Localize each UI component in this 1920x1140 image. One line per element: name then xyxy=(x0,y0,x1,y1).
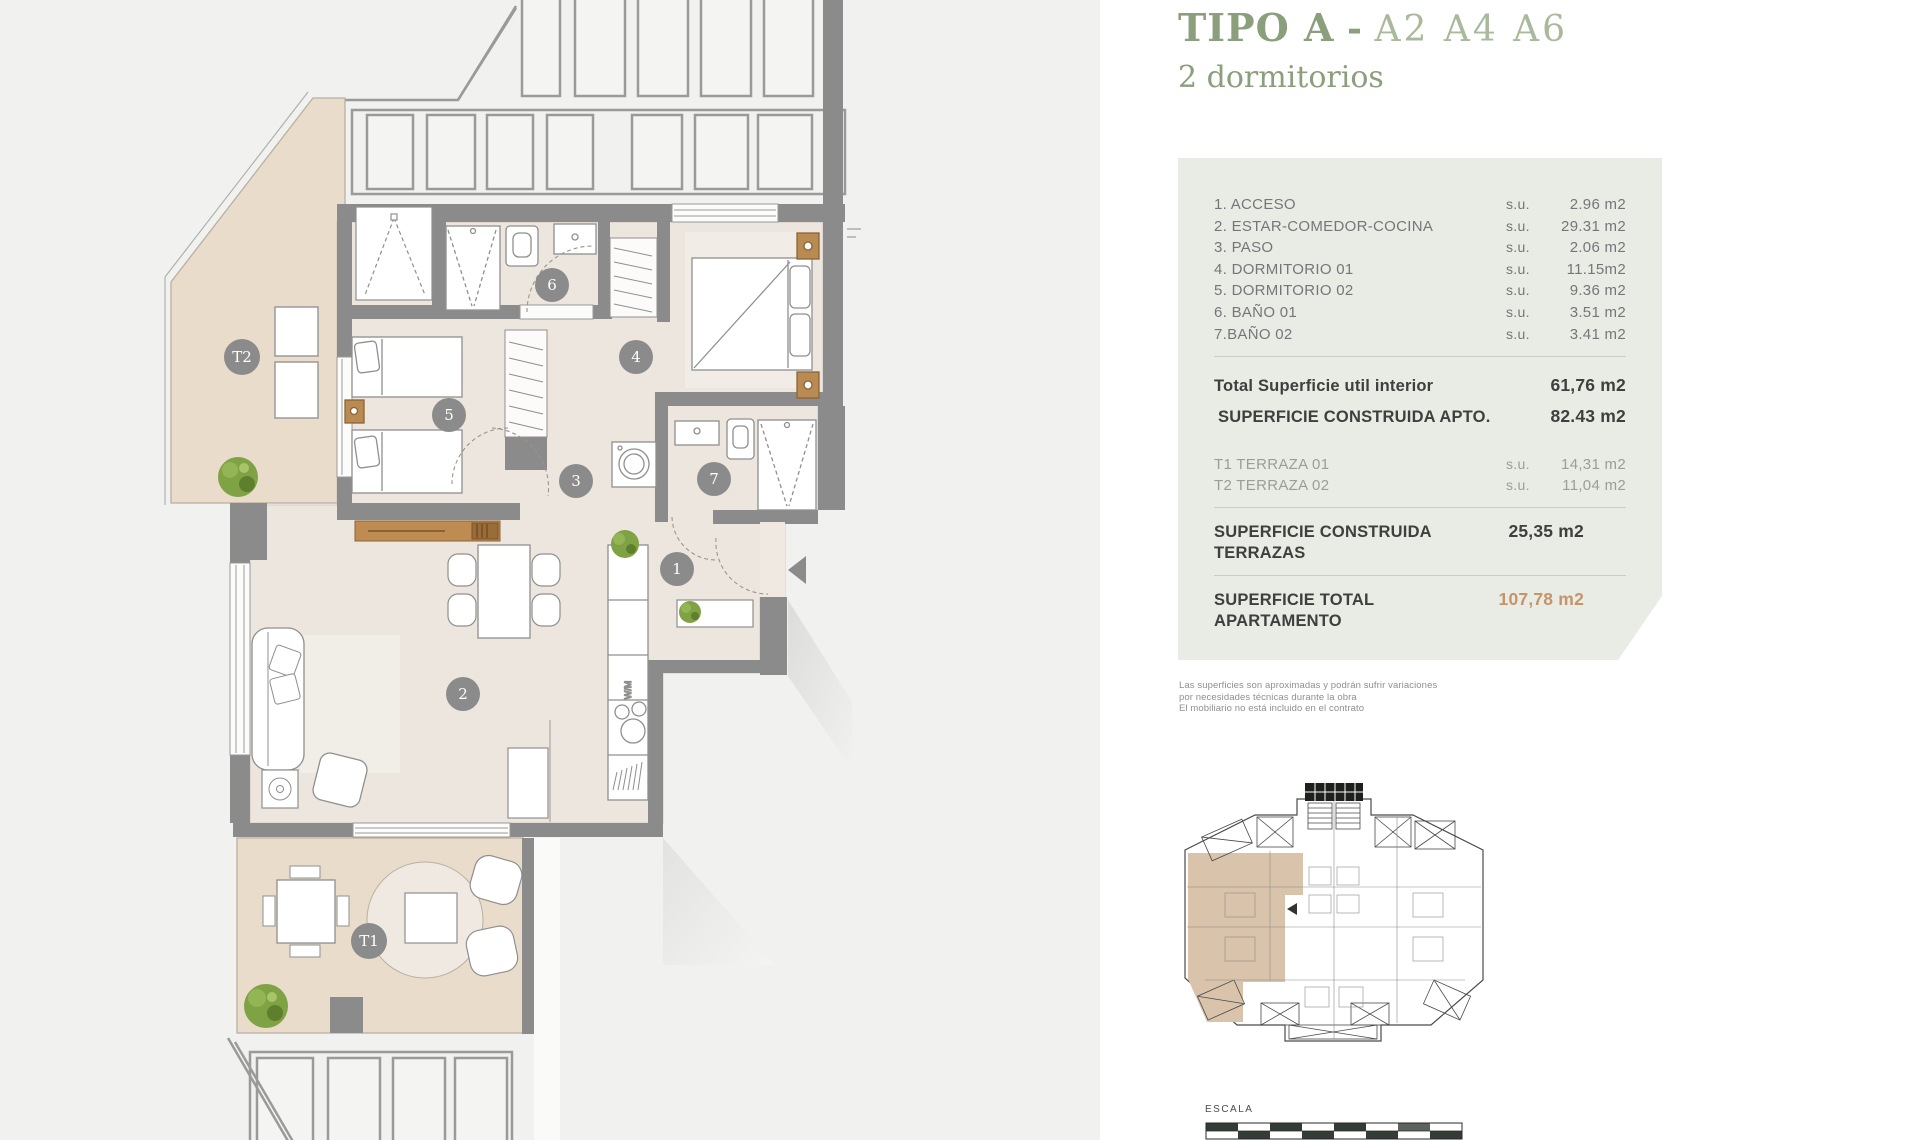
room-row: 5. DORMITORIO 02s.u.9.36 m2 xyxy=(1214,280,1626,302)
kitchen: W/M xyxy=(608,545,648,800)
closet-room xyxy=(356,207,432,300)
washer-label: W/M xyxy=(623,681,633,700)
disclaimer-text: Las superficies son aproximadas y podrán… xyxy=(1179,680,1509,715)
svg-text:5: 5 xyxy=(444,406,454,424)
divider xyxy=(1214,356,1626,357)
terrace-row: T1 TERRAZA 01s.u.14,31 m2 xyxy=(1214,454,1626,475)
page-subtitle: 2 dormitorios xyxy=(1178,60,1798,96)
page-title: TIPO A - A2 A4 A6 xyxy=(1178,6,1798,58)
terrace-total-row: SUPERFICIE CONSTRUIDA TERRAZAS25,35 m2 xyxy=(1214,521,1626,564)
planter xyxy=(330,997,363,1033)
divider xyxy=(1214,507,1626,508)
room-row: 1. ACCESOs.u.2.96 m2 xyxy=(1214,194,1626,216)
room-row: 2. ESTAR-COMEDOR-COCINAs.u.29.31 m2 xyxy=(1214,216,1626,238)
total-interior-row: Total Superficie util interior61,76 m2 xyxy=(1214,370,1626,401)
svg-text:3: 3 xyxy=(571,472,581,490)
scale-bar xyxy=(1205,1122,1465,1140)
title-block: TIPO A - A2 A4 A6 2 dormitorios xyxy=(1178,6,1798,96)
marker-7: 7 xyxy=(697,462,731,496)
grand-total-row: SUPERFICIE TOTAL APARTAMENTO107,78 m2 xyxy=(1214,589,1626,632)
room-row: 4. DORMITORIO 01s.u.11.15m2 xyxy=(1214,259,1626,281)
plant-icon xyxy=(244,984,288,1028)
room-row: 6. BAÑO 01s.u.3.51 m2 xyxy=(1214,302,1626,324)
plant-icon xyxy=(218,457,258,497)
marker-t1: T1 xyxy=(351,923,387,959)
divider xyxy=(1214,575,1626,576)
total-built-row: SUPERFICIE CONSTRUIDA APTO.82.43 m2 xyxy=(1214,401,1626,432)
marker-4: 4 xyxy=(619,340,653,374)
surface-info-panel: 1. ACCESOs.u.2.96 m2 2. ESTAR-COMEDOR-CO… xyxy=(1178,158,1662,660)
title-separator: - xyxy=(1334,8,1374,50)
svg-text:7: 7 xyxy=(709,470,719,488)
room-row: 3. PASOs.u.2.06 m2 xyxy=(1214,237,1626,259)
svg-text:T1: T1 xyxy=(359,932,379,950)
svg-text:T2: T2 xyxy=(232,348,252,366)
plant-icon xyxy=(679,601,701,623)
svg-text:1: 1 xyxy=(672,560,682,578)
room-row: 7.BAÑO 02s.u.3.41 m2 xyxy=(1214,324,1626,346)
marker-5: 5 xyxy=(432,398,466,432)
marker-6: 6 xyxy=(535,268,569,302)
svg-text:6: 6 xyxy=(547,276,557,294)
terrace-row: T2 TERRAZA 02s.u.11,04 m2 xyxy=(1214,475,1626,496)
wardrobe-paso xyxy=(505,330,547,437)
unit-codes: A2 A4 A6 xyxy=(1374,9,1568,50)
marker-3: 3 xyxy=(559,464,593,498)
type-label: TIPO A xyxy=(1178,5,1334,50)
marker-2: 2 xyxy=(446,677,480,711)
living-rug xyxy=(300,635,400,773)
svg-text:4: 4 xyxy=(631,348,641,366)
plant-icon xyxy=(611,530,639,558)
marker-1: 1 xyxy=(660,552,694,586)
svg-text:2: 2 xyxy=(458,685,468,703)
marker-t2: T2 xyxy=(224,339,260,375)
key-plan xyxy=(1165,775,1505,1075)
washing-machine xyxy=(612,442,656,487)
scale-label: ESCALA xyxy=(1205,1104,1253,1115)
wardrobe-hall xyxy=(610,238,657,317)
floor-plan: W/M xyxy=(0,0,1100,1140)
